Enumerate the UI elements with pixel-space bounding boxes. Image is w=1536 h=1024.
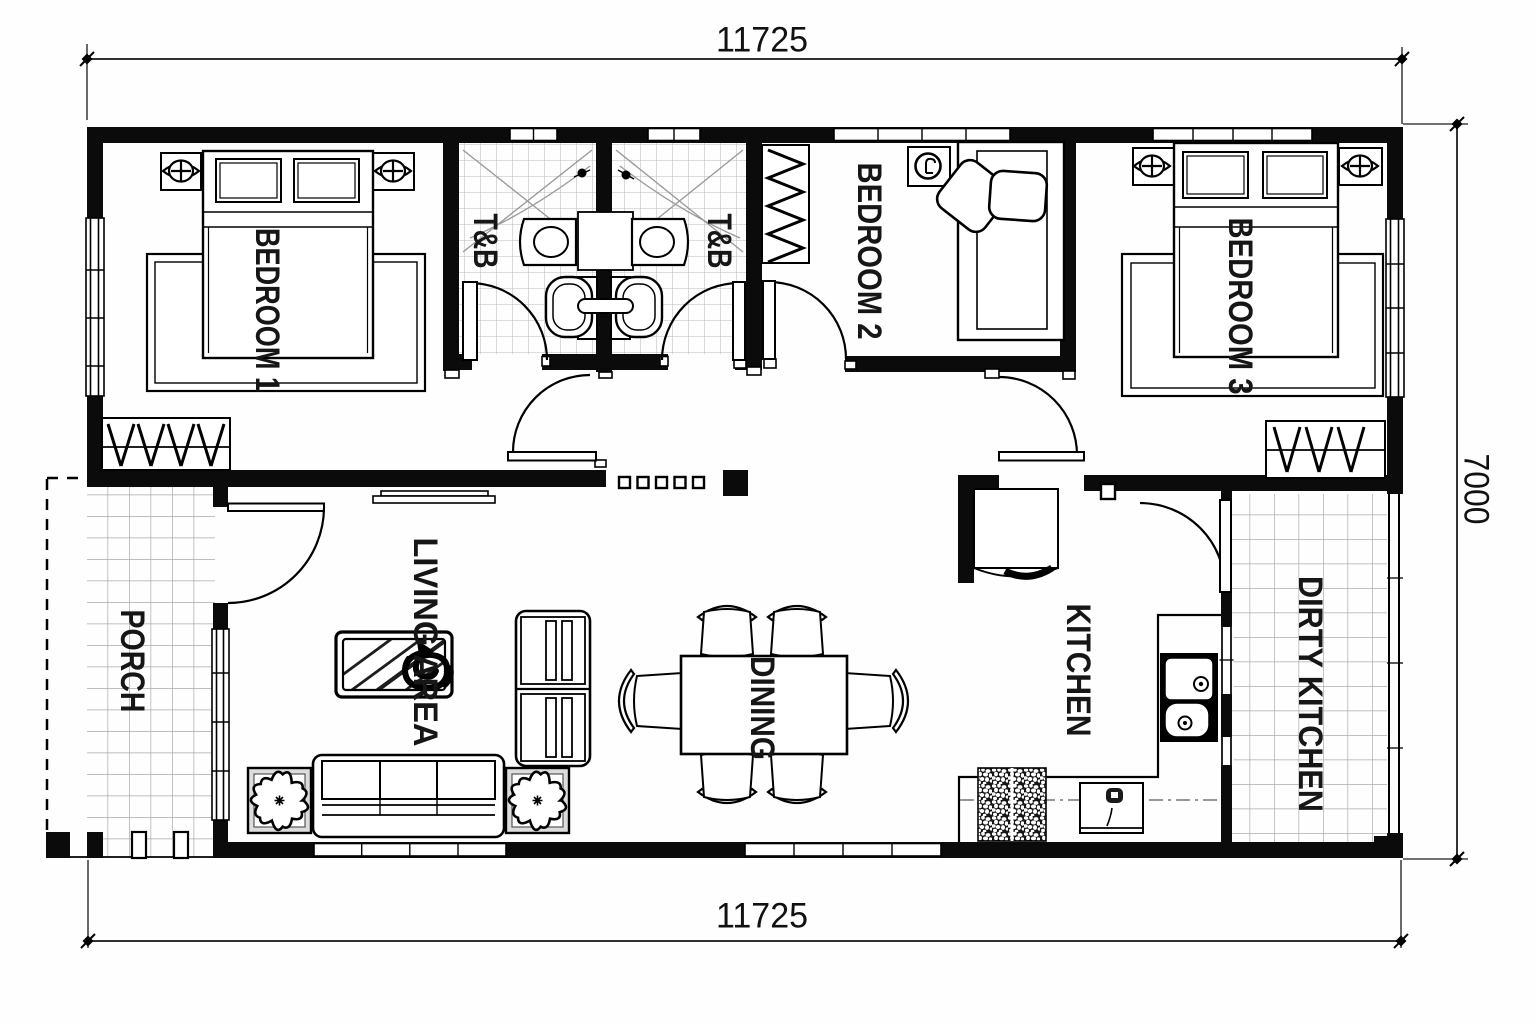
svg-text:DIRTY KITCHEN: DIRTY KITCHEN: [1291, 576, 1329, 812]
svg-text:11725: 11725: [716, 21, 808, 60]
svg-text:T&B: T&B: [466, 214, 504, 269]
svg-text:BEDROOM 2: BEDROOM 2: [850, 163, 888, 340]
svg-text:BEDROOM 1: BEDROOM 1: [248, 228, 286, 392]
svg-text:11725: 11725: [716, 897, 808, 936]
svg-text:PORCH: PORCH: [113, 610, 151, 713]
svg-text:LIVING AREA: LIVING AREA: [406, 538, 444, 747]
svg-text:DINING: DINING: [743, 656, 781, 760]
svg-text:T&B: T&B: [700, 214, 738, 269]
svg-text:7000: 7000: [1457, 454, 1496, 525]
svg-text:BEDROOM 3: BEDROOM 3: [1221, 218, 1259, 395]
svg-text:KITCHEN: KITCHEN: [1059, 604, 1097, 737]
